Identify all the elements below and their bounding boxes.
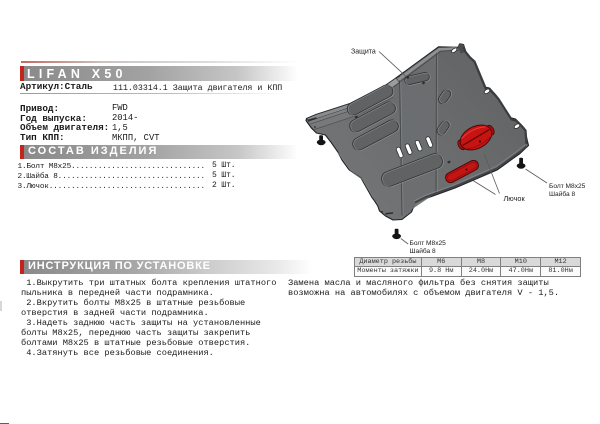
svg-text:Шайба 8: Шайба 8 xyxy=(549,190,576,198)
svg-text:Защита: Защита xyxy=(351,48,376,55)
svg-text:Болт М8х25: Болт М8х25 xyxy=(549,183,586,190)
svg-text:Болт М8х25: Болт М8х25 xyxy=(410,240,447,247)
svg-text:Лючок: Лючок xyxy=(504,194,526,203)
svg-text:Шайба 8: Шайба 8 xyxy=(410,247,437,255)
